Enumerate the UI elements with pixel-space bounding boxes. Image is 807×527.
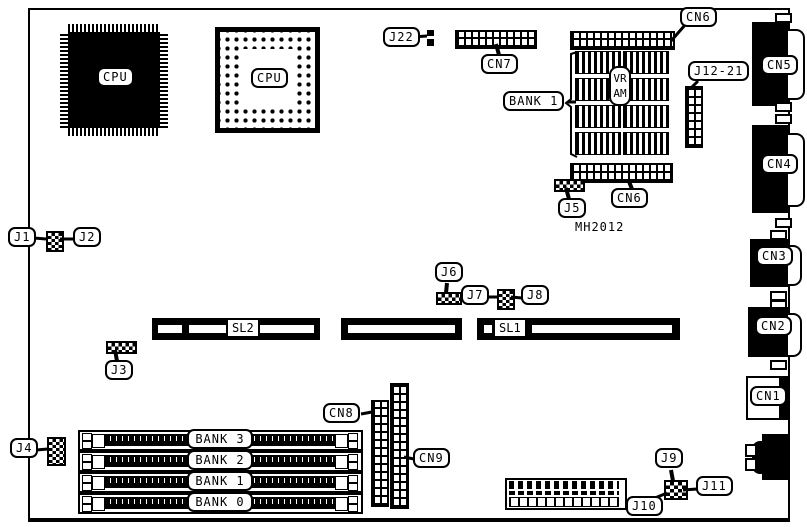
j3-connector xyxy=(106,341,137,354)
j9-jumper-block xyxy=(664,480,688,500)
keyboard-din-pin xyxy=(745,444,757,457)
cn3-label: CN3 xyxy=(756,246,793,266)
vram-chip xyxy=(575,105,621,128)
slot-sl1-channel xyxy=(532,325,672,333)
cpu-qfp-pins-left xyxy=(60,32,68,128)
j8-label: J8 xyxy=(521,285,549,305)
cn4-label: CN4 xyxy=(761,154,798,174)
sl1-label: SL1 xyxy=(493,318,527,338)
cn7-connector xyxy=(455,30,537,49)
cn2-label: CN2 xyxy=(755,316,792,336)
vram-chip xyxy=(623,105,669,128)
bank1-label: BANK 1 xyxy=(187,471,253,491)
j1-j2-jumper-block xyxy=(46,231,64,252)
bank3-label: BANK 3 xyxy=(187,429,253,449)
j7-j8-jumper-block xyxy=(497,289,515,310)
bank1-vram-label: BANK 1 xyxy=(503,91,564,111)
cn5-label: CN5 xyxy=(761,55,798,75)
cn5-mount-tab xyxy=(775,102,792,112)
cpu-pga-label: CPU xyxy=(251,68,288,88)
cn8-label: CN8 xyxy=(323,403,360,423)
power-connector xyxy=(505,478,627,510)
cpu-qfp-pins-right xyxy=(160,32,168,128)
cn9-label: CN9 xyxy=(413,448,450,468)
j9-label: J9 xyxy=(655,448,683,468)
cpu-qfp-label: CPU xyxy=(97,67,134,87)
vram-label: VRAM xyxy=(609,66,631,106)
cn1-label: CN1 xyxy=(750,386,787,406)
j12-21-jumper-block xyxy=(685,86,703,148)
j6-jumper xyxy=(436,292,462,305)
j5-label: J5 xyxy=(558,198,586,218)
j6-label: J6 xyxy=(435,262,463,282)
cn9-connector xyxy=(390,383,409,509)
j7-label: J7 xyxy=(461,285,489,305)
j1-label: J1 xyxy=(8,227,36,247)
j22-label: J22 xyxy=(383,27,420,47)
cn6-top-label: CN6 xyxy=(680,7,717,27)
cn4-mount-tab xyxy=(775,218,792,228)
vram-chip xyxy=(623,132,669,155)
motherboard-diagram: CPU CPU J22 CN7 CN6 VRAM BANK 1 J12-21 C… xyxy=(0,0,807,527)
cn7-label: CN7 xyxy=(481,54,518,74)
bank0-label: BANK 0 xyxy=(187,492,253,512)
slot-sl2-keyway xyxy=(158,325,182,333)
cn6-bottom-connector xyxy=(570,163,673,183)
j4-label: J4 xyxy=(10,438,38,458)
j10-label: J10 xyxy=(626,496,663,516)
cn4-mount-tab xyxy=(775,114,792,124)
part-number-text: MH2012 xyxy=(575,220,624,234)
cpu-qfp-pins-top xyxy=(68,24,160,32)
slot-sl1-keyway xyxy=(484,325,492,333)
j22-jumper xyxy=(427,30,434,46)
j2-label: J2 xyxy=(73,227,101,247)
keyboard-din-connector xyxy=(762,434,789,480)
cn8-connector xyxy=(371,400,389,507)
j12-21-label: J12-21 xyxy=(688,61,749,81)
cn6-top-connector xyxy=(570,31,675,50)
cpu-qfp-pins-bottom xyxy=(68,128,160,136)
cn2-mount-tab xyxy=(770,360,787,370)
keyboard-din-pin xyxy=(745,458,757,471)
slot-middle-channel xyxy=(348,325,455,333)
j4-jumper-block xyxy=(47,437,66,466)
vram-chip xyxy=(575,132,621,155)
cn6-bottom-label: CN6 xyxy=(611,188,648,208)
j5-connector xyxy=(554,179,585,192)
sl2-label: SL2 xyxy=(226,318,260,338)
j11-label: J11 xyxy=(696,476,733,496)
j3-label: J3 xyxy=(105,360,133,380)
bank2-label: BANK 2 xyxy=(187,450,253,470)
